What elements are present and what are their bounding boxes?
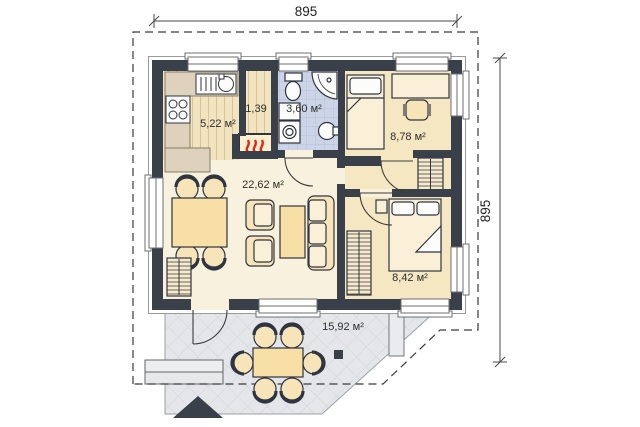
living-window-bottom: [256, 299, 320, 317]
double-bed-icon: [389, 199, 441, 271]
bathroom-window: [276, 53, 311, 71]
kitchen-window: [185, 53, 241, 71]
floor-plan: 5,22 м² 1,39 3,60 м² 8,78 м² 22,62 м² 8,…: [0, 0, 640, 427]
wardrobe-icon: [418, 158, 443, 194]
terrace-table-icon: [253, 348, 303, 377]
toilet-icon: [285, 73, 302, 101]
bedroom-top-area-label: 8,78 м²: [390, 131, 426, 143]
dining-table-icon: [172, 198, 227, 247]
stove-icon: [166, 96, 190, 123]
terrace-post: [334, 350, 343, 359]
chair-icon: [404, 100, 430, 120]
bedroom-top-window-right: [451, 71, 469, 119]
dimension-top-label: 895: [295, 4, 318, 19]
living-area-label: 22,62 м²: [242, 179, 284, 191]
kitchen-counter-bottom: [165, 148, 210, 172]
kitchen-sink-icon: [196, 74, 236, 94]
terrace-pillar: [389, 312, 404, 356]
bedroom-bottom-window-bottom: [398, 299, 452, 317]
sofa-icon: [308, 196, 334, 270]
dimension-right-label: 895: [478, 200, 493, 223]
shelf-icon: [167, 258, 191, 296]
entry-steps-icon: [145, 360, 223, 384]
desk-icon: [392, 74, 449, 98]
bathroom-area-label: 3,60 м²: [286, 103, 322, 115]
bedroom-top-window-top: [393, 53, 451, 71]
terrace-area-label: 15,92 м²: [322, 321, 364, 333]
single-bed-icon: [347, 75, 384, 149]
floor-plan-drawing: 5,22 м² 1,39 3,60 м² 8,78 м² 22,62 м² 8,…: [0, 0, 640, 427]
boiler-area-label: 1,39: [245, 103, 266, 115]
dimension-right: [493, 53, 507, 367]
living-window-left: [145, 175, 163, 251]
kitchen-area-label: 5,22 м²: [200, 118, 236, 130]
wardrobe-icon: [347, 231, 371, 295]
nightstand-icon: [376, 200, 387, 213]
bedroom-bottom-area-label: 8,42 м²: [392, 272, 428, 284]
armchair-icon: [246, 200, 274, 230]
washer-icon: [279, 121, 300, 143]
coffee-table-icon: [280, 206, 305, 258]
bedroom-bottom-window-right: [451, 244, 469, 295]
armchair-icon: [246, 236, 274, 266]
